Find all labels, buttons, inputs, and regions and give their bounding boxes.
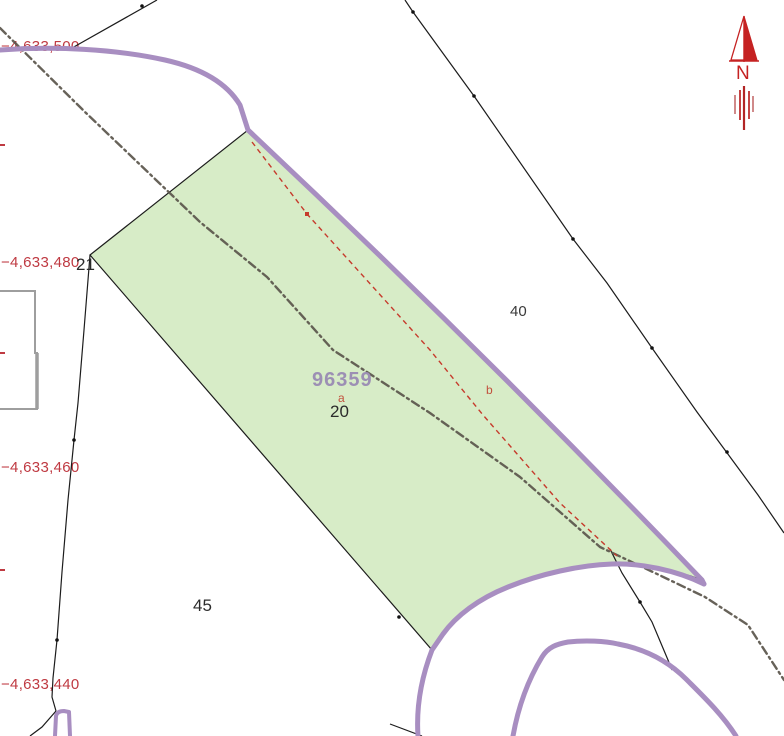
survey-line-vertex-dot bbox=[305, 212, 309, 216]
selected-parcel-polygon[interactable] bbox=[90, 130, 702, 650]
road-edge-peninsula bbox=[513, 641, 736, 736]
parcel-20-label[interactable]: 20 bbox=[330, 402, 349, 422]
parcel-45-label[interactable]: 45 bbox=[193, 596, 212, 616]
building-footprint bbox=[0, 291, 37, 409]
boundary-parcel45-west bbox=[52, 255, 90, 711]
map-canvas[interactable]: −4,633,500 −4,633,480 −4,633,460 −4,633,… bbox=[0, 0, 784, 736]
boundary-top-left bbox=[72, 0, 157, 48]
north-arrow-n-label: N bbox=[736, 63, 750, 85]
road-edge-mini bbox=[55, 711, 70, 736]
parcel-21-label[interactable]: 21 bbox=[76, 255, 95, 275]
map-vector-layer bbox=[0, 0, 784, 736]
boundary-parcel45-branch bbox=[30, 711, 56, 736]
parcel-40-label[interactable]: 40 bbox=[510, 303, 527, 320]
selected-parcel-id-label[interactable]: 96359 bbox=[312, 369, 373, 392]
subparcel-b-label: b bbox=[486, 383, 493, 397]
